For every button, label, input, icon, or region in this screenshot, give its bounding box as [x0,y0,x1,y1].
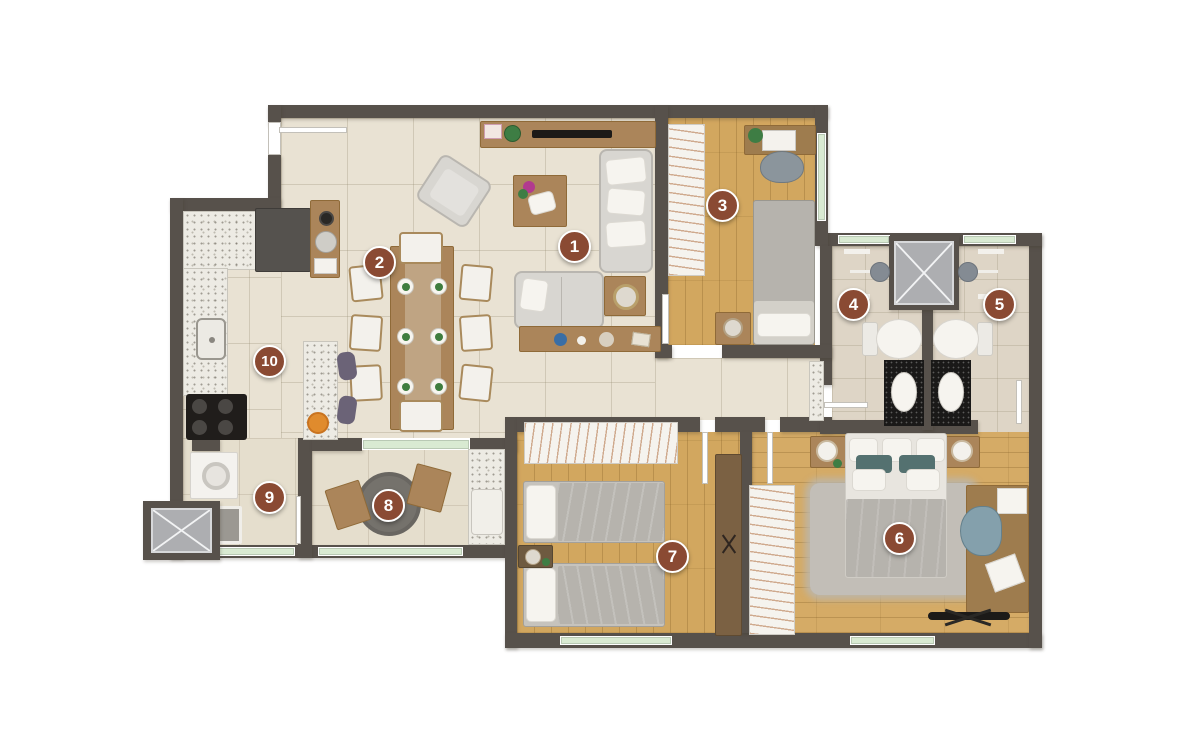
balcony-cabinet [471,489,503,535]
armchair-cushion [428,167,480,217]
bowl-black [319,211,334,226]
burner [218,399,233,414]
place-setting [397,278,414,295]
cutting-board [314,258,337,274]
place-setting [430,328,447,345]
room-badge-balcony: 8 [372,489,405,522]
entry-door-leaf [279,127,347,133]
room-badge-dining: 2 [363,246,396,279]
sink-basin [938,372,964,412]
desk-chair-bedroom6 [960,506,1002,556]
bedroom7-door-leaf [702,432,708,484]
toilet-bathroom4 [876,319,922,359]
laptop [762,130,796,151]
toilet-tank [977,322,993,356]
round-tray [723,318,743,338]
sofa-three-seat [599,149,653,273]
vanity-bathroom4 [884,360,924,426]
towel-bar [844,249,870,254]
room-badge-bathroom5: 5 [983,288,1016,321]
bar-cabinet [310,200,340,278]
shower-box [894,241,954,305]
plant-icon [504,125,521,142]
vase-decor [577,336,586,345]
elevator-shaft [151,508,212,553]
bedroom6-window [850,636,935,645]
wall-top [268,105,828,118]
washer-drum [202,462,230,490]
seat-divider [561,277,562,327]
burner [218,420,233,435]
tray-decor [599,332,614,347]
room-badge-bathroom4: 4 [837,288,870,321]
nightstand-bedroom7 [518,545,553,568]
paper [985,553,1025,592]
dining-chair [349,314,383,352]
shower-head-icon [870,262,890,282]
nightstand-bedroom3 [715,312,751,345]
bedroom3-door-leaf [662,294,669,344]
burner [192,420,207,435]
bedroom3-window [817,133,826,221]
table-lamp [613,284,639,310]
bed-pillow [526,485,556,539]
refrigerator [255,208,311,272]
sink-drain [209,337,215,343]
room-badge-living: 1 [558,230,591,263]
sofa-pillow [605,220,647,249]
tv [532,130,612,138]
kitchen-sink [196,318,226,360]
burner [192,399,207,414]
bed-pillow [906,469,940,491]
sideboard [519,326,661,352]
wardrobe-bedroom3 [668,124,705,276]
vanity-bathroom5 [931,360,971,426]
sofa-pillow [606,187,646,216]
room-badge-bedroom7: 7 [656,540,689,573]
towel-bar [978,249,1004,254]
balcony-railing [318,547,463,556]
round-tray [525,549,541,565]
bowl-decor [554,333,567,346]
shower-arm [850,270,870,273]
book-decor [631,332,651,347]
bath4-door-leaf [824,402,868,408]
wardrobe-bedroom7 [524,422,678,464]
plant-icon [748,128,763,143]
bar-stool [336,351,358,381]
dining-chair [458,363,494,402]
stove [186,394,247,440]
plant-icon [542,558,550,566]
wall-bedroom3-bottom-b [722,345,832,358]
paper [997,488,1027,514]
wall-right [1029,233,1042,648]
place-setting [397,378,414,395]
wall-corridor-a [715,417,765,432]
round-clock [951,440,973,462]
bath5-door-leaf [1016,380,1022,424]
coffee-table [513,175,567,227]
room-badge-kitchen: 10 [253,345,286,378]
picture-frame [484,124,502,139]
bath4-window [838,235,890,244]
book [527,190,557,216]
sink-basin [891,372,917,412]
room-badge-bedroom6: 6 [883,522,916,555]
side-table [604,276,646,316]
bedroom7-window [560,636,672,645]
laundry-door-leaf [296,496,301,544]
bed-pillow [757,313,811,337]
bed-pillow [852,469,886,491]
pizza [307,412,329,434]
dining-chair-head [399,232,443,264]
bath5-window [963,235,1016,244]
laundry-window [210,547,295,556]
tall-cabinet-bedroom7 [715,454,742,636]
dining-chair-head [399,400,443,432]
room-badge-bedroom3: 3 [706,189,739,222]
nightstand-right-bedroom6 [944,436,980,468]
bed-pillow [526,568,556,622]
room-badge-laundry: 9 [253,481,286,514]
sofa-loveseat [514,271,604,329]
double-bed-bedroom6 [845,433,947,578]
dining-chair [459,314,493,352]
sofa-pillow [519,277,549,312]
bedroom6-door-leaf [767,432,773,484]
single-bed-b [523,563,665,627]
closet-bedroom6 [749,485,795,635]
nightstand-left-bedroom6 [810,436,846,468]
round-tray [315,231,337,253]
plant-icon [833,459,842,468]
single-bed-a [523,481,665,543]
linen-cabinet [809,361,824,421]
bed-blanket [558,566,664,624]
desk-chair-bedroom3 [760,151,804,183]
toilet-bathroom5 [933,319,979,359]
kitchen-counter-top [183,211,257,270]
dining-chair [458,264,493,303]
shower-head-icon [958,262,978,282]
shower-arm [978,270,998,273]
washing-machine [190,452,238,499]
place-setting [430,378,447,395]
floor-corridor [655,358,820,420]
place-setting [397,328,414,345]
wall-bedroom7-left [505,417,517,648]
place-setting [430,278,447,295]
single-bed-bedroom3 [753,200,815,345]
floor-plan: 1 2 3 4 5 6 7 8 9 10 [0,0,1200,750]
bed-blanket [558,483,664,541]
sofa-pillow [605,156,647,186]
plant-decor [518,189,528,199]
balcony-glass-door [362,439,470,450]
